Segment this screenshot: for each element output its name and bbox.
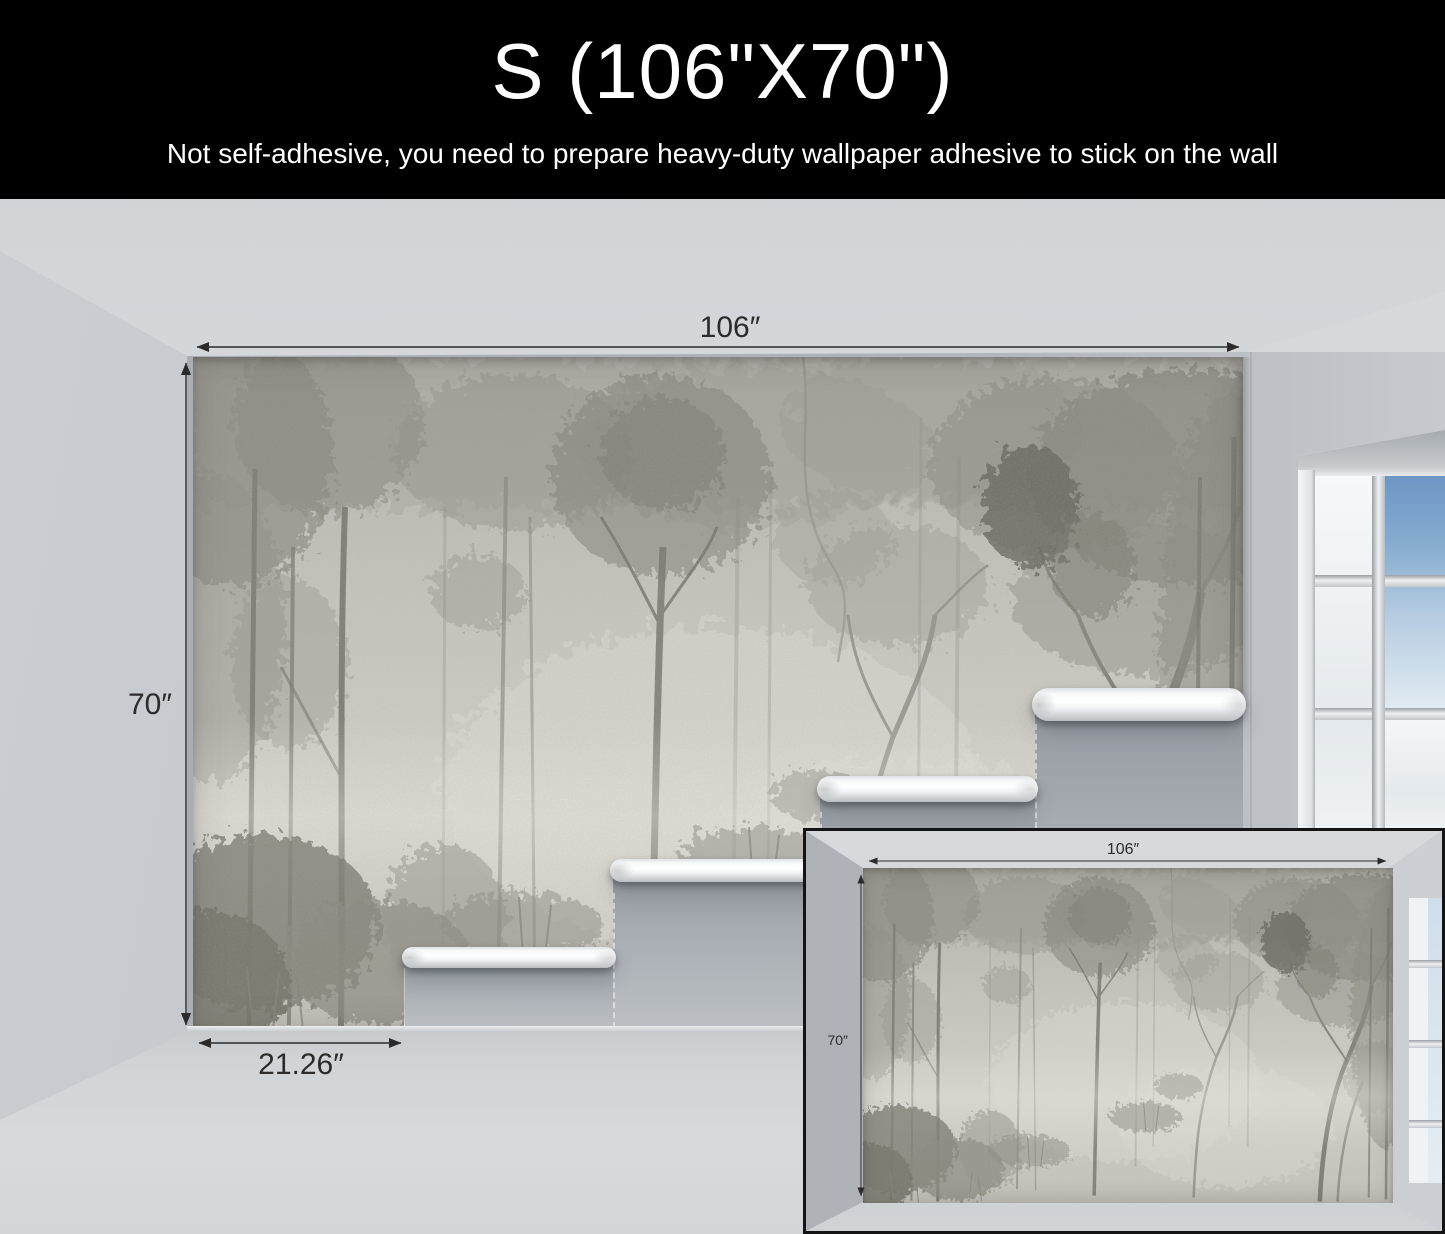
adhesive-note: Not self-adhesive, you need to prepare h…	[0, 138, 1445, 170]
inset-mural-forest-art	[863, 868, 1393, 1203]
main-height-label: 70″	[108, 688, 172, 722]
inset-mural	[863, 868, 1393, 1203]
inset-height-label: 70″	[812, 1032, 848, 1048]
window-pane-sky	[1385, 470, 1445, 710]
bare-wall-strip-3	[613, 870, 820, 1031]
inset-width-label: 106″	[1078, 841, 1168, 859]
inset-window	[1409, 898, 1442, 1183]
strip-seam-line	[1035, 724, 1037, 828]
inset-window-mullion	[1409, 1120, 1442, 1128]
mural-edge-shadow	[1243, 357, 1251, 707]
paper-edge-line	[404, 968, 405, 1030]
window-pane	[1385, 710, 1445, 830]
inset-finished-room	[803, 828, 1445, 1234]
wallpaper-roll-1	[402, 947, 616, 968]
inset-window-mullion	[1409, 960, 1442, 968]
inset-window-mullion	[1409, 1040, 1442, 1048]
window-pane	[1315, 476, 1372, 830]
window-jamb	[1298, 470, 1315, 830]
wallpaper-roll-2	[610, 859, 823, 882]
wallpaper-roll-3	[817, 776, 1038, 802]
strip-width-label: 21.26″	[225, 1048, 377, 1082]
wallpaper-roll-4	[1032, 688, 1246, 721]
main-width-label: 106″	[660, 311, 800, 345]
product-image: 106″ 70″ 21.26″ 106″ 70″ S (106"X70") No…	[0, 0, 1445, 1234]
bare-wall-strip-2	[405, 957, 613, 1031]
window-mullion	[1372, 476, 1385, 830]
window	[1298, 430, 1445, 830]
size-title: S (106"X70")	[0, 26, 1445, 117]
baseboard	[187, 1026, 803, 1032]
header-banner: S (106"X70") Not self-adhesive, you need…	[0, 0, 1445, 199]
